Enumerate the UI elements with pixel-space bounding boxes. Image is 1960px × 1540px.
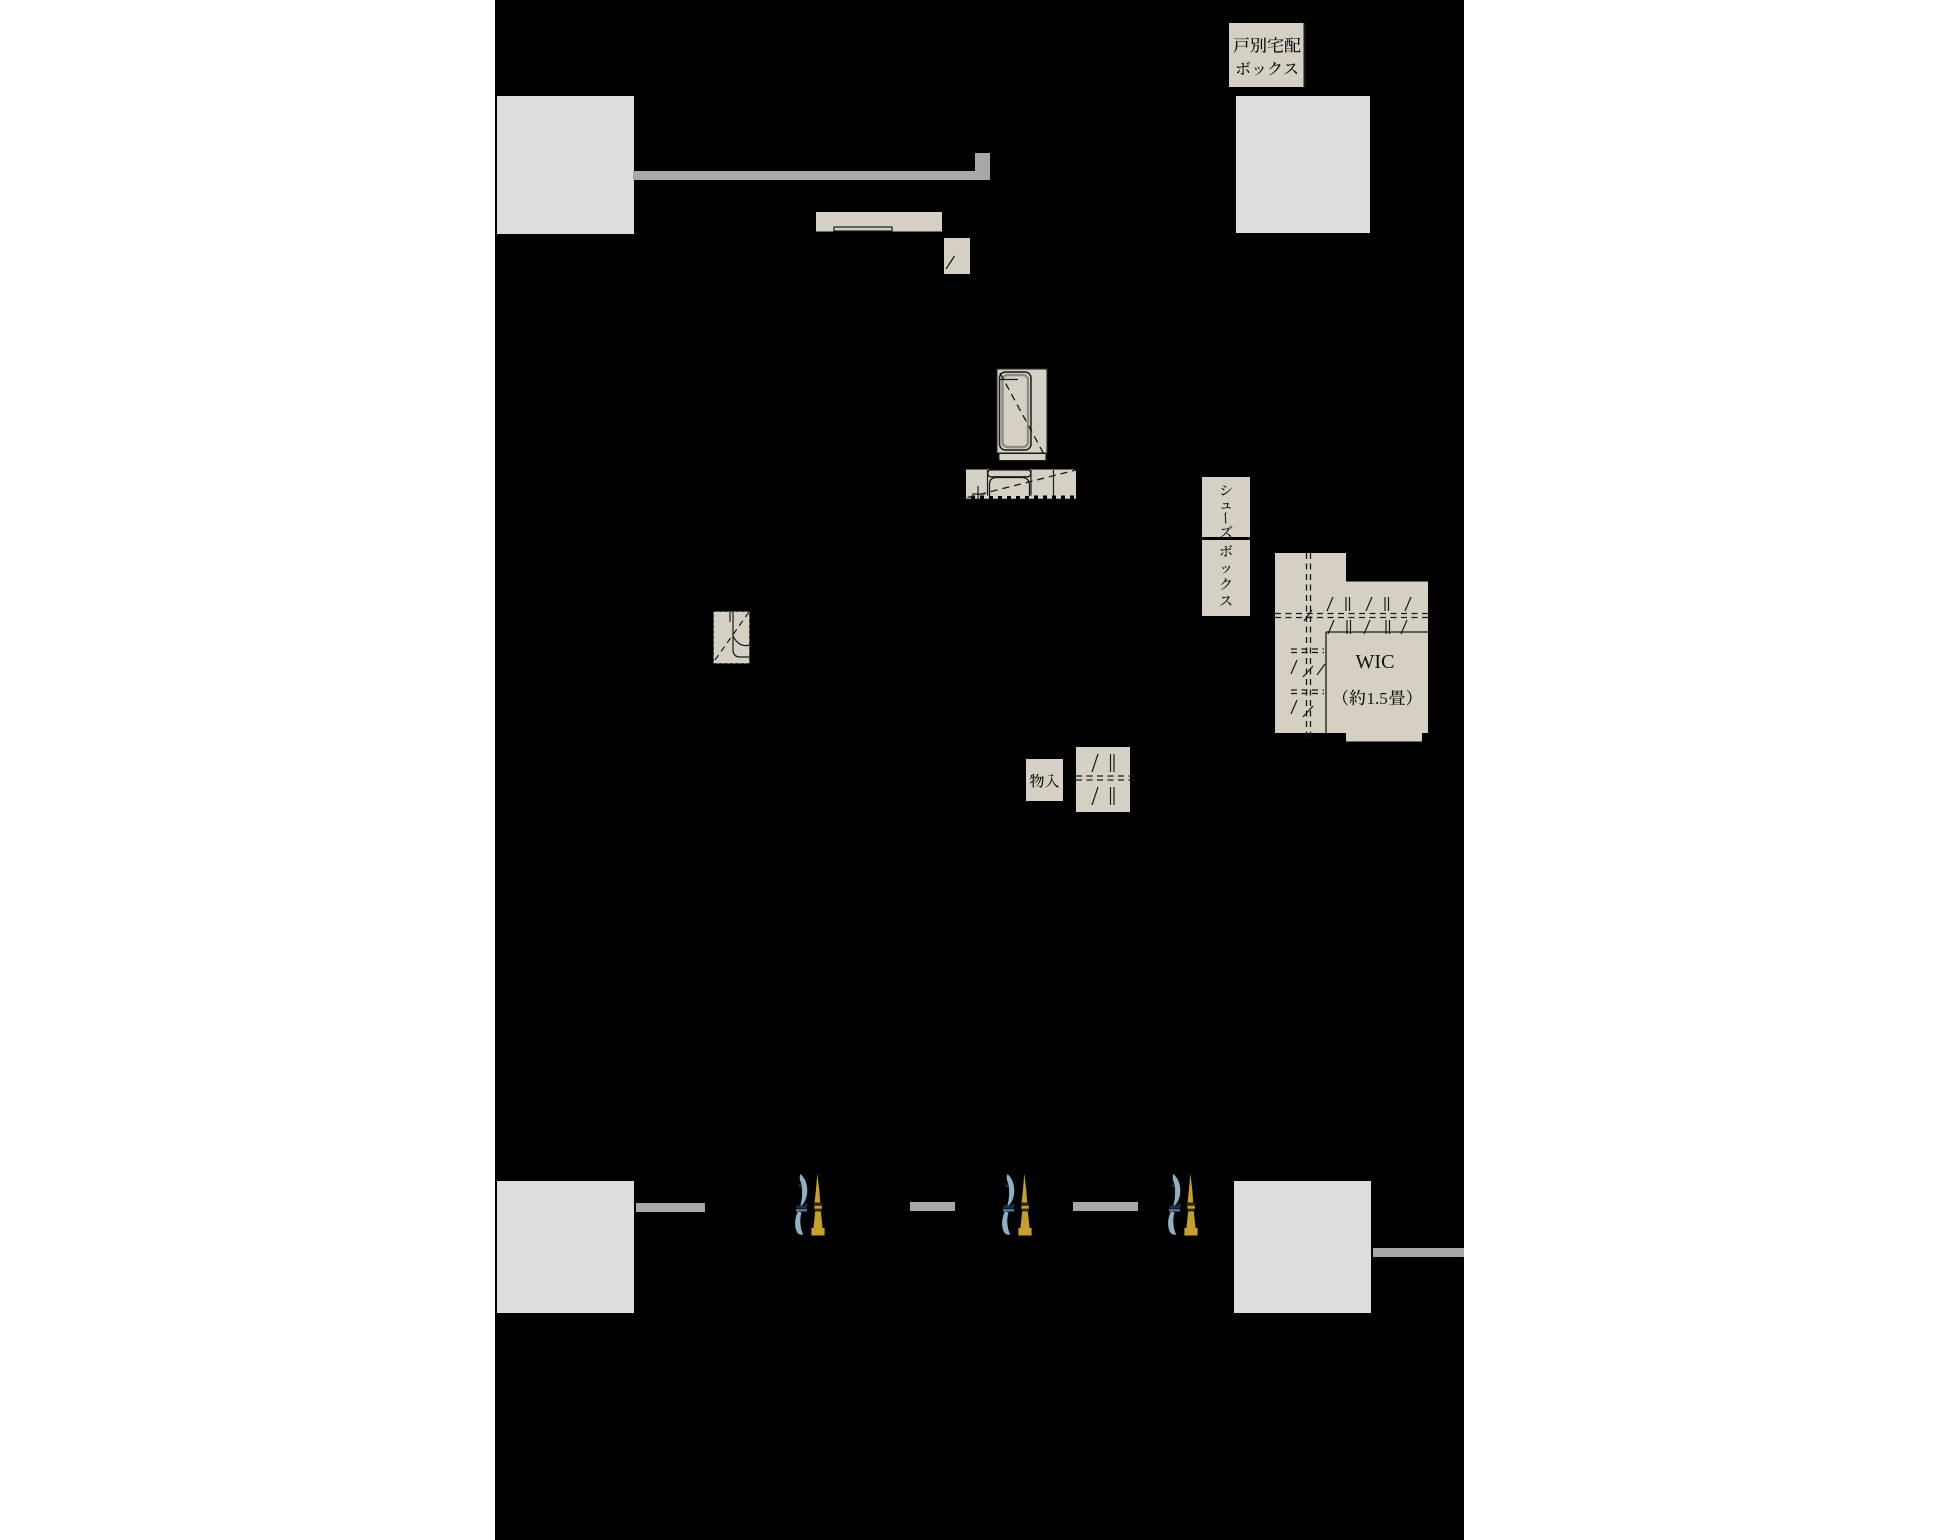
svg-text:WIC: WIC — [1356, 651, 1395, 673]
svg-text:1.5: 1.5 — [1367, 689, 1388, 708]
